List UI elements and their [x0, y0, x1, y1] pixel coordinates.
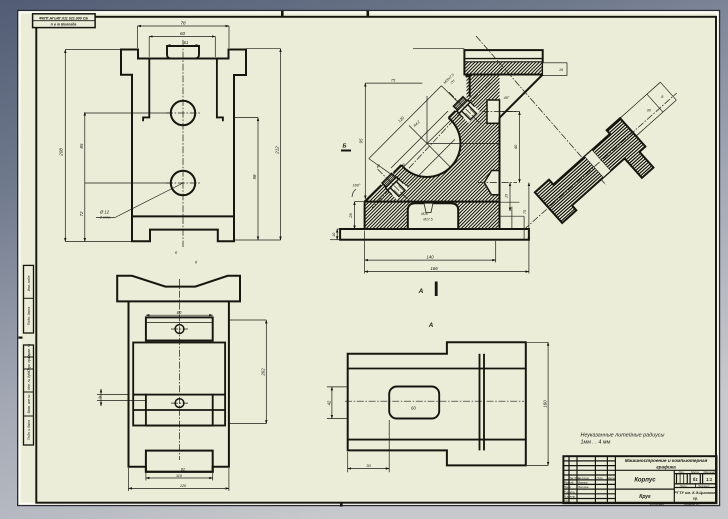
svg-text:8: 8 — [99, 395, 101, 399]
svg-text:Лист: Лист — [679, 484, 688, 488]
svg-text:Перв. прим.: Перв. прим. — [27, 354, 31, 372]
svg-text:Листов 1: Листов 1 — [697, 484, 710, 488]
svg-text:б1: б1 — [693, 477, 699, 482]
svg-text:60: 60 — [411, 406, 416, 411]
svg-text:10: 10 — [332, 233, 336, 237]
svg-text:Дата: Дата — [607, 476, 615, 480]
svg-text:гр.: гр. — [693, 496, 698, 500]
svg-text:75: 75 — [523, 210, 527, 214]
svg-text:Подп. дата: Подп. дата — [27, 307, 31, 326]
svg-text:1мм . . 4 мм: 1мм . . 4 мм — [581, 440, 611, 446]
svg-text:208: 208 — [59, 148, 64, 157]
svg-text:85: 85 — [79, 143, 84, 148]
svg-text:95: 95 — [358, 138, 363, 143]
svg-text:Формат А3: Формат А3 — [684, 503, 700, 507]
svg-text:№ докум.: № докум. — [578, 476, 590, 480]
svg-text:15: 15 — [505, 194, 509, 198]
svg-text:Корпус: Корпус — [634, 478, 656, 484]
svg-text:Машиностроение и компьютерная: Машиностроение и компьютерная — [625, 458, 708, 463]
svg-text:98: 98 — [252, 174, 257, 179]
svg-text:Иванов: Иванов — [578, 480, 588, 484]
svg-text:212: 212 — [275, 146, 280, 155]
svg-text:Копировал: Копировал — [650, 503, 664, 507]
svg-text:1:1: 1:1 — [706, 477, 713, 482]
svg-text:72: 72 — [79, 211, 84, 216]
svg-text:28: 28 — [348, 213, 353, 219]
svg-text:60: 60 — [177, 310, 182, 315]
svg-text:Петров: Петров — [578, 485, 589, 489]
svg-text:Ø17,5: Ø17,5 — [422, 218, 432, 222]
svg-text:ФКПГ.НГиИГ.011 021.000 СБ: ФКПГ.НГиИГ.011 021.000 СБ — [39, 17, 88, 21]
svg-text:120: 120 — [180, 484, 187, 488]
svg-text:М16: М16 — [421, 212, 428, 216]
svg-text:Взам. инв.№: Взам. инв.№ — [27, 394, 31, 413]
svg-text:Т.контр.: Т.контр. — [564, 490, 576, 494]
svg-text:Подп.: Подп. — [597, 476, 604, 480]
svg-text:графика: графика — [656, 463, 676, 469]
svg-text:75: 75 — [391, 78, 396, 83]
svg-text:140: 140 — [426, 254, 434, 259]
svg-text:160°: 160° — [353, 184, 361, 188]
svg-text:61: 61 — [184, 40, 189, 45]
svg-text:60: 60 — [180, 31, 186, 36]
svg-text:30: 30 — [366, 463, 371, 468]
svg-text:Б: Б — [343, 144, 347, 150]
svg-text:п в т Вологда: п в т Вологда — [51, 23, 77, 27]
svg-text:Лит.: Лит. — [677, 470, 684, 474]
svg-text:160: 160 — [542, 400, 547, 408]
svg-text:78: 78 — [180, 21, 186, 26]
svg-text:Подп. и дата: Подп. и дата — [27, 420, 31, 440]
svg-text:Инв. № дубл.: Инв. № дубл. — [27, 370, 31, 390]
svg-text:110: 110 — [176, 474, 183, 478]
svg-text:42: 42 — [326, 400, 331, 405]
svg-text:А: А — [418, 288, 424, 295]
svg-text:Неуказанные литейные радиусы: Неуказанные литейные радиусы — [581, 432, 665, 439]
svg-text:РГТУ им. К.Э.Циолков.: РГТУ им. К.Э.Циолков. — [674, 491, 717, 495]
svg-text:16: 16 — [559, 68, 563, 72]
svg-text:Ø 12: Ø 12 — [99, 210, 110, 215]
svg-text:40: 40 — [513, 144, 518, 149]
svg-text:А: А — [428, 322, 434, 329]
svg-text:45°: 45° — [504, 96, 510, 100]
svg-text:2 отв.: 2 отв. — [99, 216, 111, 220]
svg-text:Н.контр.: Н.контр. — [564, 495, 576, 499]
svg-text:Разраб.: Разраб. — [564, 480, 574, 484]
svg-text:Масштаб: Масштаб — [703, 470, 716, 474]
svg-text:Пров.: Пров. — [564, 485, 572, 489]
svg-text:202: 202 — [261, 368, 266, 377]
svg-text:166: 166 — [430, 266, 438, 271]
svg-text:Утв.: Утв. — [564, 499, 571, 503]
svg-text:Инв. подл.: Инв. подл. — [27, 275, 31, 291]
svg-text:Масса: Масса — [691, 470, 699, 474]
svg-text:Круг: Круг — [639, 494, 651, 500]
